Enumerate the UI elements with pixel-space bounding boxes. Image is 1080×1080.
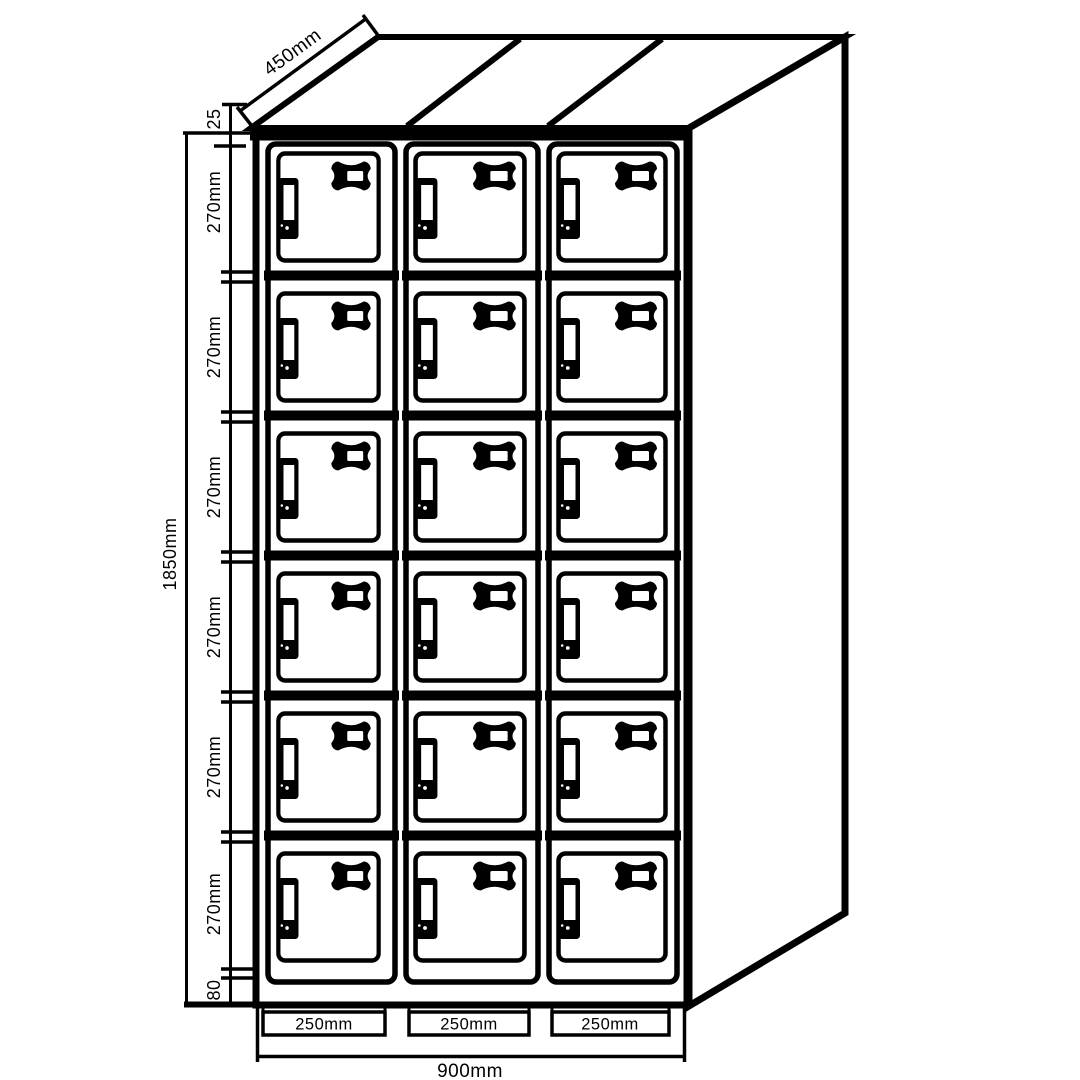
locker-door (415, 714, 524, 821)
dim-row-label: 270mm (204, 736, 224, 799)
locker-technical-drawing: 450mm 25 270mm 270mm 270mm 270mm 270mm 2… (0, 0, 1080, 1080)
locker-door (278, 294, 379, 401)
locker-door (415, 434, 524, 541)
dim-row-label: 270mm (204, 596, 224, 659)
dim-column-width-label: 250mm (295, 1016, 353, 1034)
locker-door (558, 154, 666, 261)
dim-total-width-label: 900mm (437, 1061, 503, 1080)
cabinet-side-face (689, 37, 845, 1006)
dim-height-chain: 25 270mm 270mm 270mm 270mm 270mm 270mm 8… (204, 103, 259, 1005)
dim-row-label: 270mm (204, 873, 224, 936)
dim-column-width-label: 250mm (581, 1016, 639, 1034)
locker-door (278, 854, 379, 961)
locker-door (278, 574, 379, 681)
locker-door (278, 434, 379, 541)
locker-door (558, 854, 666, 961)
dim-row-label: 270mm (204, 456, 224, 519)
dim-columns: 250mm 250mm 250mm (263, 1004, 669, 1035)
locker-door (558, 574, 666, 681)
dim-column-width-label: 250mm (440, 1016, 498, 1034)
dim-top-frame-label: 25 (204, 108, 224, 129)
dim-plinth-label: 80 (204, 979, 224, 1000)
cabinet-front (250, 131, 690, 1005)
locker-door (415, 574, 524, 681)
locker-door (558, 714, 666, 821)
drawing-canvas: 450mm 25 270mm 270mm 270mm 270mm 270mm 2… (0, 0, 1080, 1080)
dim-row-label: 270mm (204, 171, 224, 234)
locker-door (558, 294, 666, 401)
locker-door (415, 854, 524, 961)
locker-door (278, 154, 379, 261)
locker-door (415, 294, 524, 401)
dim-row-label: 270mm (204, 316, 224, 379)
locker-door (558, 434, 666, 541)
locker-door (278, 714, 379, 821)
dim-total-height-label: 1850mm (160, 517, 180, 590)
locker-door (415, 154, 524, 261)
